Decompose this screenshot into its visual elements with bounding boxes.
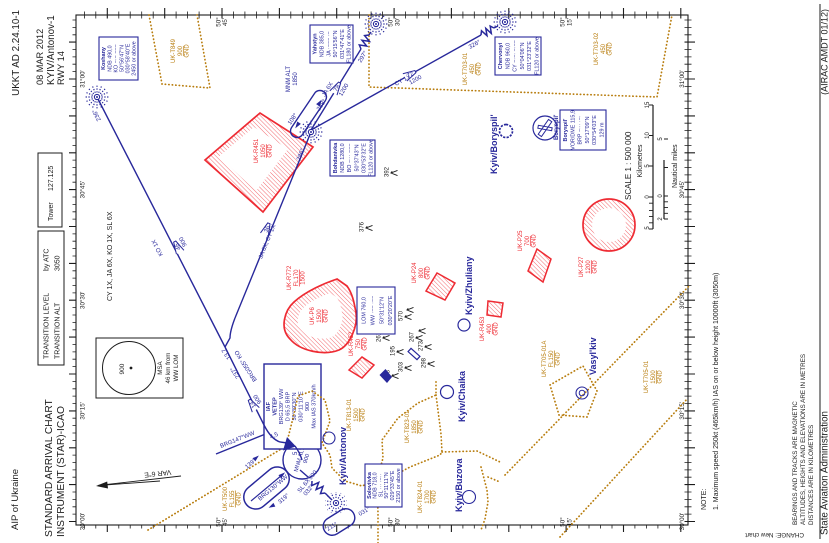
- svg-text:(AIRAC AMDT 01/12): (AIRAC AMDT 01/12): [820, 9, 829, 95]
- svg-text:400: 400: [487, 323, 493, 334]
- svg-text:3050: 3050: [55, 255, 62, 271]
- svg-text:GND: GND: [532, 234, 538, 248]
- svg-text:FL180 or above: FL180 or above: [347, 25, 353, 63]
- svg-text:GND: GND: [363, 337, 369, 351]
- svg-text:MSA: MSA: [157, 360, 164, 374]
- svg-text:1500: 1500: [651, 370, 657, 384]
- svg-text:State Aviation Administration: State Aviation Administration: [820, 411, 829, 535]
- svg-text:CHANGE: New chart: CHANGE: New chart: [745, 531, 804, 538]
- svg-text:46 km from: 46 km from: [165, 353, 172, 384]
- svg-text:1050: 1050: [261, 144, 267, 158]
- svg-text:FL150: FL150: [549, 350, 555, 368]
- svg-text:GND: GND: [237, 492, 243, 506]
- svg-text:UK-R451: UK-R451: [254, 138, 260, 163]
- svg-text:45': 45': [222, 518, 229, 526]
- svg-text:UK-T824-01: UK-T824-01: [418, 480, 424, 513]
- svg-text:WW ·−− ·−−: WW ·−− ·−−: [370, 296, 376, 325]
- svg-text:129 m: 129 m: [599, 122, 605, 137]
- svg-text:1500: 1500: [317, 309, 323, 323]
- svg-text:30°00': 30°00': [679, 513, 686, 530]
- svg-text:30°15': 30°15': [80, 402, 87, 419]
- svg-text:MNM ALT: MNM ALT: [286, 66, 292, 93]
- svg-text:FL155: FL155: [230, 490, 236, 508]
- svg-text:BRG139° WW: BRG139° WW: [279, 388, 285, 425]
- svg-text:WW LOM: WW LOM: [173, 355, 180, 382]
- svg-text:UK-T705-01: UK-T705-01: [644, 360, 650, 393]
- svg-text:50°37'43"N: 50°37'43"N: [354, 144, 360, 171]
- svg-text:ALTITUDES, HEIGHTS AND ELEVATI: ALTITUDES, HEIGHTS AND ELEVATIONS ARE IN…: [800, 354, 807, 525]
- svg-text:08 MAR 2012: 08 MAR 2012: [35, 29, 45, 85]
- svg-text:800: 800: [419, 267, 425, 278]
- svg-text:303: 303: [399, 361, 405, 372]
- svg-text:195: 195: [391, 345, 397, 356]
- svg-text:1. Maximum speed 250kt (465km/: 1. Maximum speed 250kt (465km/h) IAS on …: [713, 273, 720, 510]
- svg-text:UK-T705-01A: UK-T705-01A: [542, 341, 548, 378]
- svg-text:030°20'20"E: 030°20'20"E: [388, 295, 394, 325]
- svg-text:INSTRUMENT (STAR)-ICAO: INSTRUMENT (STAR)-ICAO: [56, 406, 67, 537]
- svg-text:30°00': 30°00': [80, 513, 87, 530]
- svg-text:750: 750: [356, 338, 362, 349]
- svg-text:LOM 760,0: LOM 760,0: [361, 297, 367, 324]
- svg-text:0: 0: [645, 195, 651, 199]
- svg-text:GND: GND: [419, 420, 425, 434]
- svg-text:RWY 14: RWY 14: [56, 51, 66, 85]
- svg-text:15: 15: [645, 101, 651, 108]
- svg-text:DISTANCES ARE IN KILOMETRES: DISTANCES ARE IN KILOMETRES: [808, 425, 815, 525]
- svg-text:450: 450: [470, 63, 476, 74]
- svg-text:1700: 1700: [425, 490, 431, 504]
- svg-text:UK-P6: UK-P6: [310, 307, 316, 325]
- svg-text:30°15': 30°15': [679, 402, 686, 419]
- svg-text:Kyiv/Buzova: Kyiv/Buzova: [454, 457, 464, 512]
- svg-text:TRANSITION LEVEL: TRANSITION LEVEL: [44, 293, 51, 359]
- svg-text:UK-P25: UK-P25: [518, 230, 524, 252]
- svg-text:BRP −··· ·−·: BRP −··· ·−·: [578, 115, 584, 144]
- svg-text:Kilometres: Kilometres: [637, 144, 644, 178]
- svg-text:30': 30': [394, 518, 401, 526]
- svg-text:Tower: Tower: [48, 202, 55, 221]
- svg-text:2450 or above: 2450 or above: [132, 41, 138, 75]
- svg-text:GND: GND: [324, 309, 330, 323]
- svg-text:Kyiv/Zhuliany: Kyiv/Zhuliany: [464, 256, 474, 315]
- svg-text:30°30': 30°30': [80, 292, 87, 309]
- svg-text:30°45': 30°45': [679, 181, 686, 198]
- svg-text:5: 5: [293, 451, 299, 455]
- svg-text:VOR/DME 115,9: VOR/DME 115,9: [570, 110, 576, 150]
- svg-text:45': 45': [222, 18, 229, 26]
- svg-text:STANDARD ARRIVAL CHART: STANDARD ARRIVAL CHART: [44, 399, 55, 537]
- svg-text:030°54'03"E: 030°54'03"E: [592, 115, 598, 145]
- svg-text:1500: 1500: [354, 408, 360, 422]
- svg-text:NDB 1280,0: NDB 1280,0: [340, 143, 346, 172]
- svg-text:15': 15': [566, 18, 573, 26]
- svg-text:900: 900: [305, 402, 311, 411]
- svg-text:KO −·− −−−: KO −·− −−−: [113, 44, 119, 72]
- svg-text:UK-R453: UK-R453: [480, 316, 486, 341]
- svg-text:1850: 1850: [412, 420, 418, 434]
- svg-text:Bohdanivka: Bohdanivka: [333, 142, 339, 174]
- svg-text:AIP of Ukraine: AIP of Ukraine: [10, 469, 21, 530]
- svg-text:Kyiv/Antonov: Kyiv/Antonov: [338, 427, 348, 485]
- svg-text:Chervonyi: Chervonyi: [498, 42, 504, 69]
- svg-text:030°58'40"E: 030°58'40"E: [126, 43, 132, 73]
- svg-text:0: 0: [658, 194, 664, 198]
- svg-text:450: 450: [601, 43, 607, 54]
- svg-text:31°00': 31°00': [80, 70, 87, 87]
- svg-text:031°23'32"E: 031°23'32"E: [527, 41, 533, 71]
- svg-text:UK-P27: UK-P27: [579, 256, 585, 278]
- svg-text:BEARINGS AND TRACKS ARE MAGNET: BEARINGS AND TRACKS ARE MAGNETIC: [792, 401, 799, 525]
- svg-text:900: 900: [178, 45, 184, 56]
- svg-text:UK-T703-02: UK-T703-02: [594, 32, 600, 65]
- svg-text:UK-P24: UK-P24: [412, 262, 418, 284]
- svg-text:GND: GND: [658, 370, 664, 384]
- svg-text:50°17'09"N: 50°17'09"N: [585, 116, 591, 143]
- svg-text:Nautical miles: Nautical miles: [672, 144, 679, 188]
- svg-text:50°04'06"N: 50°04'06"N: [520, 42, 526, 69]
- svg-text:50°39'30"N: 50°39'30"N: [292, 393, 298, 421]
- svg-text:GND: GND: [432, 490, 438, 504]
- svg-text:IAF: IAF: [266, 401, 272, 411]
- svg-text:NDB 385,0: NDB 385,0: [320, 31, 326, 57]
- svg-text:GND: GND: [608, 42, 614, 56]
- svg-text:031°47'41"E: 031°47'41"E: [340, 29, 346, 59]
- svg-text:50°31'12"N: 50°31'12"N: [379, 297, 385, 324]
- svg-text:FL120 or above: FL120 or above: [369, 139, 375, 177]
- svg-text:UK-T849: UK-T849: [171, 38, 177, 63]
- svg-text:UK-T500: UK-T500: [223, 486, 229, 511]
- svg-text:1500: 1500: [301, 271, 307, 285]
- svg-text:UKKT AD 2.24.10-1: UKKT AD 2.24.10-1: [11, 10, 22, 96]
- svg-text:GND: GND: [477, 62, 483, 76]
- svg-text:392: 392: [385, 166, 391, 177]
- svg-text:UK-T703-01: UK-T703-01: [463, 52, 469, 85]
- svg-text:Boryspil': Boryspil': [563, 119, 569, 142]
- svg-text:Koshany: Koshany: [101, 47, 107, 70]
- svg-text:CY −·−· −·−−: CY −·−· −·−−: [513, 40, 519, 72]
- svg-text:267: 267: [410, 331, 416, 342]
- svg-text:by ATC: by ATC: [44, 249, 51, 271]
- svg-text:1850: 1850: [293, 72, 299, 86]
- svg-text:5: 5: [645, 226, 651, 230]
- svg-text:TRANSITION ALT: TRANSITION ALT: [55, 302, 62, 359]
- svg-text:Kyiv/Chaika: Kyiv/Chaika: [457, 370, 467, 422]
- svg-text:SCALE 1 : 500 000: SCALE 1 : 500 000: [624, 131, 633, 200]
- svg-text:Kyiv/Boryspil': Kyiv/Boryspil': [489, 114, 499, 174]
- svg-text:GND: GND: [426, 266, 432, 280]
- svg-text:GND: GND: [494, 322, 500, 336]
- svg-text:5: 5: [658, 137, 664, 141]
- svg-text:10: 10: [645, 132, 651, 139]
- svg-text:298: 298: [422, 357, 428, 368]
- svg-text:Yahotyn: Yahotyn: [313, 34, 319, 55]
- svg-text:31°00': 31°00': [679, 70, 686, 87]
- svg-text:30°45': 30°45': [80, 181, 87, 198]
- svg-text:1200: 1200: [586, 260, 592, 274]
- svg-text:273: 273: [419, 340, 425, 351]
- svg-text:2: 2: [658, 217, 664, 221]
- svg-text:Boryspil': Boryspil': [554, 114, 560, 140]
- svg-text:127.125: 127.125: [48, 166, 55, 191]
- svg-text:2150 or above: 2150 or above: [396, 468, 402, 502]
- svg-text:700: 700: [525, 235, 531, 246]
- svg-text:VETEP: VETEP: [272, 397, 278, 416]
- svg-text:570: 570: [399, 310, 405, 321]
- svg-text:030°53'32"E: 030°53'32"E: [361, 143, 367, 173]
- svg-text:CY 1X, JA 6X, KO 1X, SL 6X: CY 1X, JA 6X, KO 1X, SL 6X: [107, 211, 114, 301]
- svg-text:GND: GND: [593, 260, 599, 274]
- svg-text:FL120 or above: FL120 or above: [534, 37, 540, 75]
- svg-text:30': 30': [394, 18, 401, 26]
- svg-text:UK-R452: UK-R452: [349, 331, 355, 356]
- svg-text:50°56'47"N: 50°56'47"N: [120, 45, 126, 72]
- svg-text:D 65,5 BRP: D 65,5 BRP: [285, 391, 291, 421]
- svg-text:Vasyl'kiv: Vasyl'kiv: [588, 337, 598, 375]
- svg-text:900: 900: [119, 363, 126, 374]
- svg-text:UK-T823-01: UK-T823-01: [405, 410, 411, 443]
- svg-text:50°15'56"N: 50°15'56"N: [333, 30, 339, 57]
- svg-text:NDB 960,0: NDB 960,0: [505, 43, 511, 69]
- svg-text:GND: GND: [268, 144, 274, 158]
- svg-text:GND: GND: [361, 408, 367, 422]
- svg-text:JA ·−−− ·−: JA ·−−− ·−: [326, 31, 332, 56]
- svg-text:GND: GND: [185, 44, 191, 58]
- svg-text:UK-R772: UK-R772: [287, 265, 293, 290]
- svg-text:376: 376: [360, 221, 366, 232]
- svg-text:GND: GND: [556, 352, 562, 366]
- svg-text:BO −··· −−−: BO −··· −−−: [347, 144, 353, 173]
- svg-text:NDB 490,0: NDB 490,0: [107, 45, 113, 71]
- svg-text:5: 5: [645, 164, 651, 168]
- svg-text:NOTE:: NOTE:: [701, 489, 708, 510]
- svg-text:FL170: FL170: [294, 269, 300, 287]
